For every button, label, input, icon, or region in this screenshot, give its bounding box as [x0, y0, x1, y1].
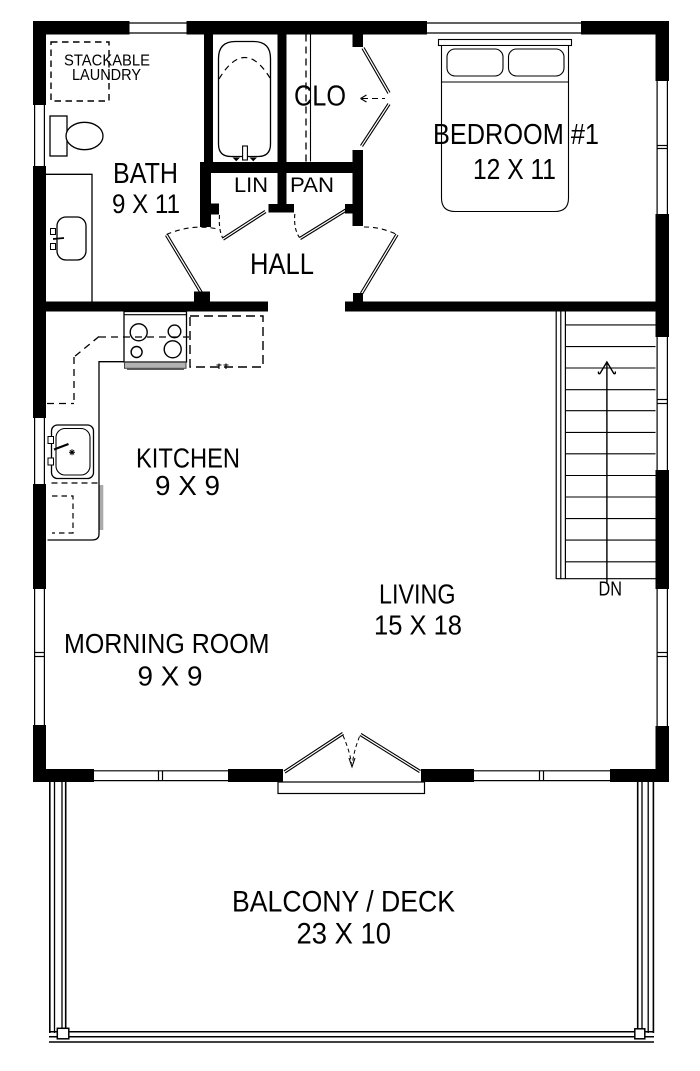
svg-text:9 X 9: 9 X 9 — [138, 661, 203, 692]
svg-text:15 X 18: 15 X 18 — [374, 610, 462, 641]
svg-text:MORNING ROOM: MORNING ROOM — [64, 628, 270, 659]
svg-text:12 X 11: 12 X 11 — [473, 154, 556, 186]
svg-text:KITCHEN: KITCHEN — [136, 443, 240, 474]
svg-text:CLO: CLO — [294, 81, 346, 113]
svg-text:9 X 9: 9 X 9 — [155, 470, 220, 501]
svg-text:23 X 10: 23 X 10 — [297, 918, 392, 951]
svg-text:PAN: PAN — [290, 173, 334, 197]
svg-text:LIN: LIN — [234, 173, 268, 197]
svg-text:BEDROOM #1: BEDROOM #1 — [433, 119, 599, 151]
svg-text:LIVING: LIVING — [379, 579, 456, 610]
svg-text:LAUNDRY: LAUNDRY — [72, 67, 141, 84]
svg-text:BATH: BATH — [113, 158, 178, 190]
svg-text:DN: DN — [599, 579, 623, 601]
svg-text:BALCONY / DECK: BALCONY / DECK — [232, 886, 455, 919]
svg-text:HALL: HALL — [250, 248, 314, 281]
svg-text:9 X 11: 9 X 11 — [112, 189, 180, 219]
